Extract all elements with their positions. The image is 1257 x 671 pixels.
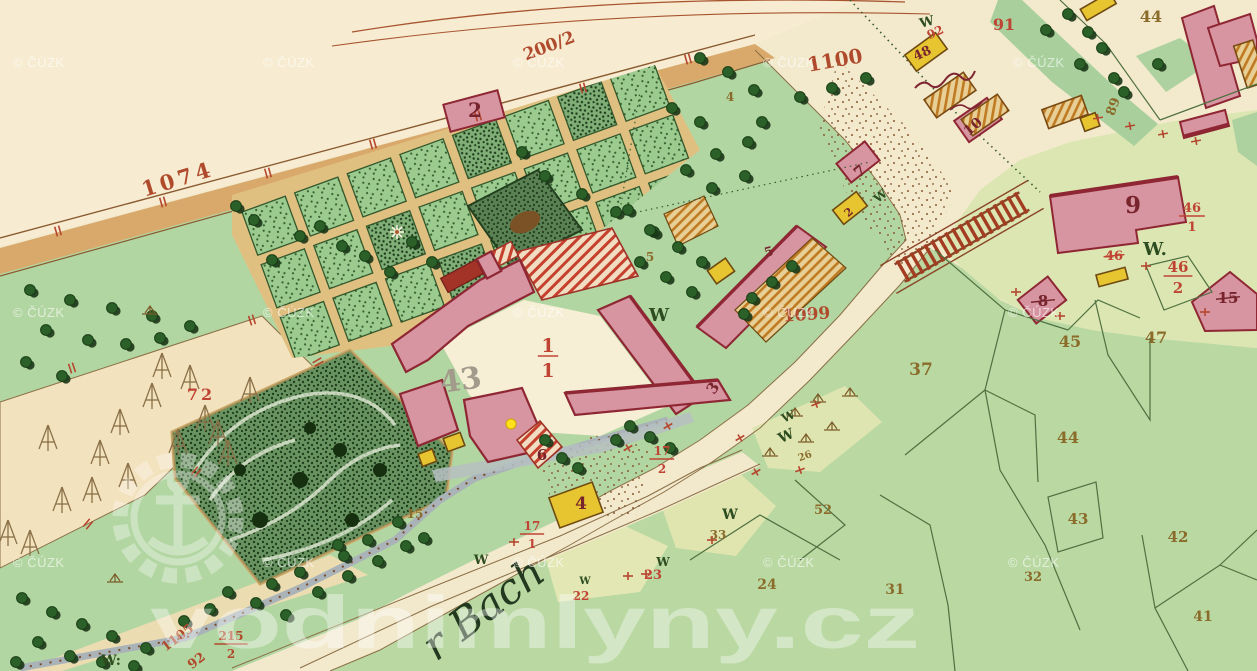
tree-icon <box>611 435 622 446</box>
tree-icon <box>787 261 798 272</box>
map-label: 44 <box>1057 428 1079 447</box>
tree-icon <box>249 215 260 226</box>
tree-icon <box>427 257 438 268</box>
text: 1 <box>541 360 554 382</box>
tree-icon <box>661 272 672 283</box>
tree-icon <box>577 189 588 200</box>
text: 46 <box>1183 201 1201 216</box>
tree-icon <box>625 421 636 432</box>
map-label: 5 <box>646 250 654 264</box>
text: 2 <box>658 462 666 476</box>
tree-icon <box>767 277 778 288</box>
map-label: 15 <box>407 507 424 521</box>
tree-icon <box>749 85 760 96</box>
cuzk-watermark: © ČÚZK <box>763 555 815 570</box>
cuzk-watermark: © ČÚZK <box>13 305 65 320</box>
tree-icon <box>147 311 158 322</box>
tree-icon <box>47 607 58 618</box>
map-label: 43 <box>1068 510 1089 528</box>
tree-icon <box>635 257 646 268</box>
tree-icon <box>185 321 196 332</box>
tree-icon <box>695 117 706 128</box>
cuzk-watermark: © ČÚZK <box>763 305 815 320</box>
tree-icon <box>645 432 656 443</box>
map-label: W <box>655 555 670 569</box>
cuzk-watermark: © ČÚZK <box>263 305 315 320</box>
tree-icon <box>41 325 52 336</box>
text: 1 <box>1187 220 1196 235</box>
map-label: 4 <box>726 90 734 104</box>
tree-icon <box>697 257 708 268</box>
tree-icon <box>337 241 348 252</box>
tree-icon <box>673 242 684 253</box>
map-label: W. <box>1142 239 1167 260</box>
tree-icon <box>711 149 722 160</box>
tree-icon <box>65 651 76 662</box>
tree-icon <box>407 237 418 248</box>
tree-icon <box>155 333 166 344</box>
tree-icon <box>743 137 754 148</box>
tree-icon <box>107 303 118 314</box>
map-label: 52 <box>814 503 832 518</box>
map-label: W <box>721 507 738 523</box>
tree-icon <box>1119 87 1130 98</box>
tree-icon <box>707 183 718 194</box>
map-viewport[interactable]: 1074200/21100109911059226435729815104892… <box>0 0 1257 671</box>
text: 17 <box>524 519 541 533</box>
map-label: 2 <box>468 98 482 122</box>
tree-icon <box>1097 43 1108 54</box>
garden-star <box>390 225 404 239</box>
cuzk-watermark: © ČÚZK <box>513 55 565 70</box>
tree-icon <box>795 92 806 103</box>
cuzk-watermark: © ČÚZK <box>263 55 315 70</box>
map-label: W <box>473 553 489 568</box>
map-label: 9 <box>1125 192 1141 219</box>
tree-icon <box>517 147 528 158</box>
tree-icon <box>723 67 734 78</box>
tree-icon <box>695 53 706 64</box>
tree-icon <box>557 453 568 464</box>
tree-icon <box>393 517 404 528</box>
tree-icon <box>861 73 872 84</box>
tree-icon <box>21 357 32 368</box>
cuzk-watermark: © ČÚZK <box>1013 55 1065 70</box>
tree-icon <box>231 201 242 212</box>
tree-icon <box>747 293 758 304</box>
tree-icon <box>17 593 28 604</box>
tree-icon <box>1063 9 1074 20</box>
map-label: 44 <box>1140 7 1162 26</box>
cuzk-watermark: © ČÚZK <box>13 55 65 70</box>
map-label: 37 <box>909 360 933 380</box>
tree-icon <box>343 571 354 582</box>
tree-icon <box>540 435 551 446</box>
tree-icon <box>401 541 412 552</box>
map-label: 33 <box>710 528 727 542</box>
tree-icon <box>573 463 584 474</box>
tree-icon <box>645 225 656 236</box>
cuzk-watermark: © ČÚZK <box>13 555 65 570</box>
tree-icon <box>339 551 350 562</box>
text: 1 <box>541 335 554 357</box>
tree-icon <box>611 207 622 218</box>
tree-icon <box>25 285 36 296</box>
cuzk-watermark: © ČÚZK <box>263 555 315 570</box>
map-label: 42 <box>1168 528 1189 546</box>
map-label: 41 <box>1193 609 1212 625</box>
tree-icon <box>1083 27 1094 38</box>
tree-icon <box>83 335 94 346</box>
map-label: 4 <box>575 494 587 514</box>
tree-icon <box>687 287 698 298</box>
cuzk-watermark: © ČÚZK <box>1008 555 1060 570</box>
tree-icon <box>65 295 76 306</box>
site-watermark-text: vodnimlyny.cz <box>150 581 920 664</box>
tree-icon <box>57 371 68 382</box>
map-marker-dot[interactable] <box>506 419 516 429</box>
tree-icon <box>121 339 132 350</box>
cuzk-watermark: © ČÚZK <box>763 55 815 70</box>
location-marker[interactable] <box>506 419 516 429</box>
tree-icon <box>739 309 750 320</box>
map-label: W: <box>100 653 121 669</box>
tree-icon <box>1153 59 1164 70</box>
map-label: 72 <box>187 385 215 404</box>
tree-icon <box>667 103 678 114</box>
tree-icon <box>33 637 44 648</box>
tree-icon <box>419 533 430 544</box>
tree-icon <box>333 540 344 551</box>
tree-icon <box>1041 25 1052 36</box>
text: 1 <box>528 537 536 551</box>
map-label: 43 <box>438 360 484 400</box>
text: 17 <box>654 444 671 458</box>
tree-icon <box>385 267 396 278</box>
map-label: 6 <box>537 446 547 464</box>
tree-icon <box>315 221 326 232</box>
tree-icon <box>107 631 118 642</box>
tree-icon <box>360 251 371 262</box>
tree-icon <box>540 171 551 182</box>
tree-icon <box>740 171 751 182</box>
map-label: 91 <box>993 15 1015 34</box>
tree-icon <box>1109 73 1120 84</box>
tree-icon <box>363 535 374 546</box>
tree-icon <box>757 117 768 128</box>
tree-icon <box>827 83 838 94</box>
text: 2 <box>1173 279 1183 297</box>
cuzk-watermark: © ČÚZK <box>513 305 565 320</box>
text: 46 <box>1168 258 1189 276</box>
map-label: 47 <box>1145 328 1167 347</box>
cuzk-watermark: © ČÚZK <box>1008 305 1060 320</box>
tree-icon <box>11 657 22 668</box>
tree-icon <box>681 165 692 176</box>
cuzk-watermark: © ČÚZK <box>513 555 565 570</box>
tree-icon <box>267 255 278 266</box>
tree-icon <box>129 661 140 671</box>
tree-icon <box>373 556 384 567</box>
map-label: W <box>648 305 670 326</box>
tree-icon <box>1075 59 1086 70</box>
tree-icon <box>295 231 306 242</box>
map-label: 32 <box>1024 570 1042 585</box>
tree-icon <box>77 619 88 630</box>
cadastral-map[interactable]: 1074200/21100109911059226435729815104892… <box>0 0 1257 671</box>
map-label: 45 <box>1059 332 1081 351</box>
